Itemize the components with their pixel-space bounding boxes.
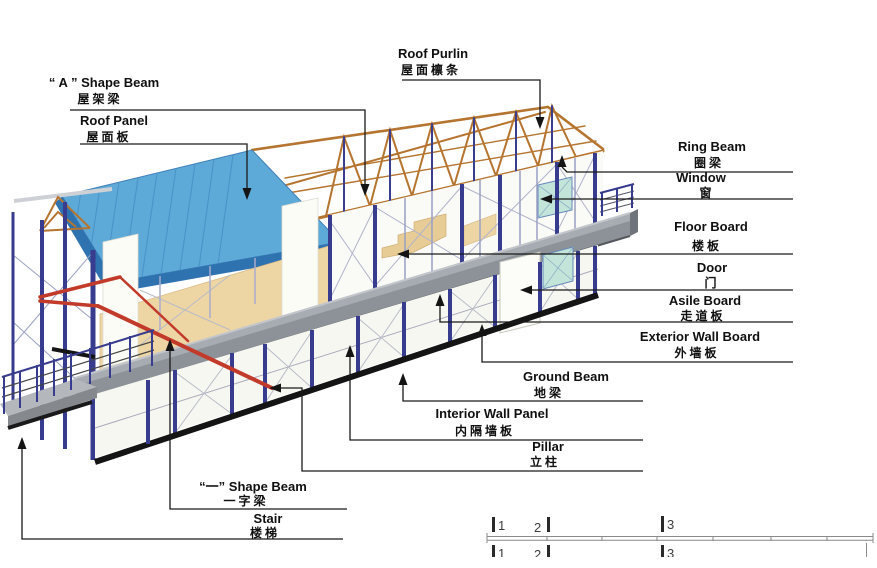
label-interior-wall-en: Interior Wall Panel [402, 406, 582, 421]
label-interior-wall-zh: 内隔墙板 [405, 422, 565, 439]
arrow-a-shape-beam [361, 184, 370, 196]
scale-tick-mark [547, 517, 550, 532]
label-asile-board-zh: 走道板 [623, 307, 783, 324]
label-a-shape-beam-en: “ A ” Shape Beam [24, 75, 184, 90]
label-a-shape-beam-zh: 屋架梁 [20, 90, 180, 107]
scale-bar-clipped-row: 1 2 3 [480, 543, 877, 557]
scale-number-3b: 3 [667, 546, 674, 557]
label-exterior-wall-zh: 外墙板 [617, 344, 777, 361]
scale-end-bracket [866, 543, 867, 557]
scale-number-3: 3 [667, 517, 674, 532]
scale-tick-mark [492, 545, 495, 557]
arrow-roof-purlin [536, 117, 545, 129]
label-ring-beam-en: Ring Beam [632, 139, 792, 154]
label-floor-board-en: Floor Board [631, 219, 791, 234]
label-window-zh: 窗 [627, 184, 787, 201]
scale-tick-mark [492, 517, 495, 532]
diagram-page: “ A ” Shape Beam 屋架梁 Roof Panel 屋面板 Roof… [0, 0, 877, 568]
label-ground-beam-en: Ground Beam [486, 369, 646, 384]
label-asile-board-en: Asile Board [625, 293, 785, 308]
arrow-ground-beam [399, 373, 408, 385]
label-floor-board-zh: 楼板 [627, 237, 787, 254]
label-door-zh: 门 [632, 274, 792, 291]
label-roof-panel-en: Roof Panel [34, 113, 194, 128]
label-ring-beam-zh: 圈梁 [629, 154, 789, 171]
scale-number-2b: 2 [534, 547, 541, 557]
label-stair-zh: 楼梯 [185, 524, 345, 541]
scale-tick-mark [661, 545, 664, 557]
label-exterior-wall-en: Exterior Wall Board [610, 329, 790, 344]
scale-tick-mark [547, 545, 550, 557]
label-one-shape-beam-zh: 一字梁 [166, 492, 326, 509]
label-roof-purlin-en: Roof Purlin [353, 46, 513, 61]
scale-tick-mark [661, 516, 664, 532]
label-pillar-en: Pillar [468, 439, 628, 454]
label-window-en: Window [621, 170, 781, 185]
label-ground-beam-zh: 地梁 [469, 384, 629, 401]
label-roof-purlin-zh: 屋面檩条 [351, 61, 511, 78]
scale-number-2: 2 [534, 520, 541, 535]
label-door-en: Door [632, 260, 792, 275]
label-pillar-zh: 立柱 [465, 453, 625, 470]
scale-number-1b: 1 [498, 546, 505, 557]
label-roof-panel-zh: 屋面板 [29, 128, 189, 145]
scale-number-1: 1 [498, 518, 505, 533]
arrow-stair [18, 437, 27, 449]
scale-bar-lines [487, 533, 873, 543]
